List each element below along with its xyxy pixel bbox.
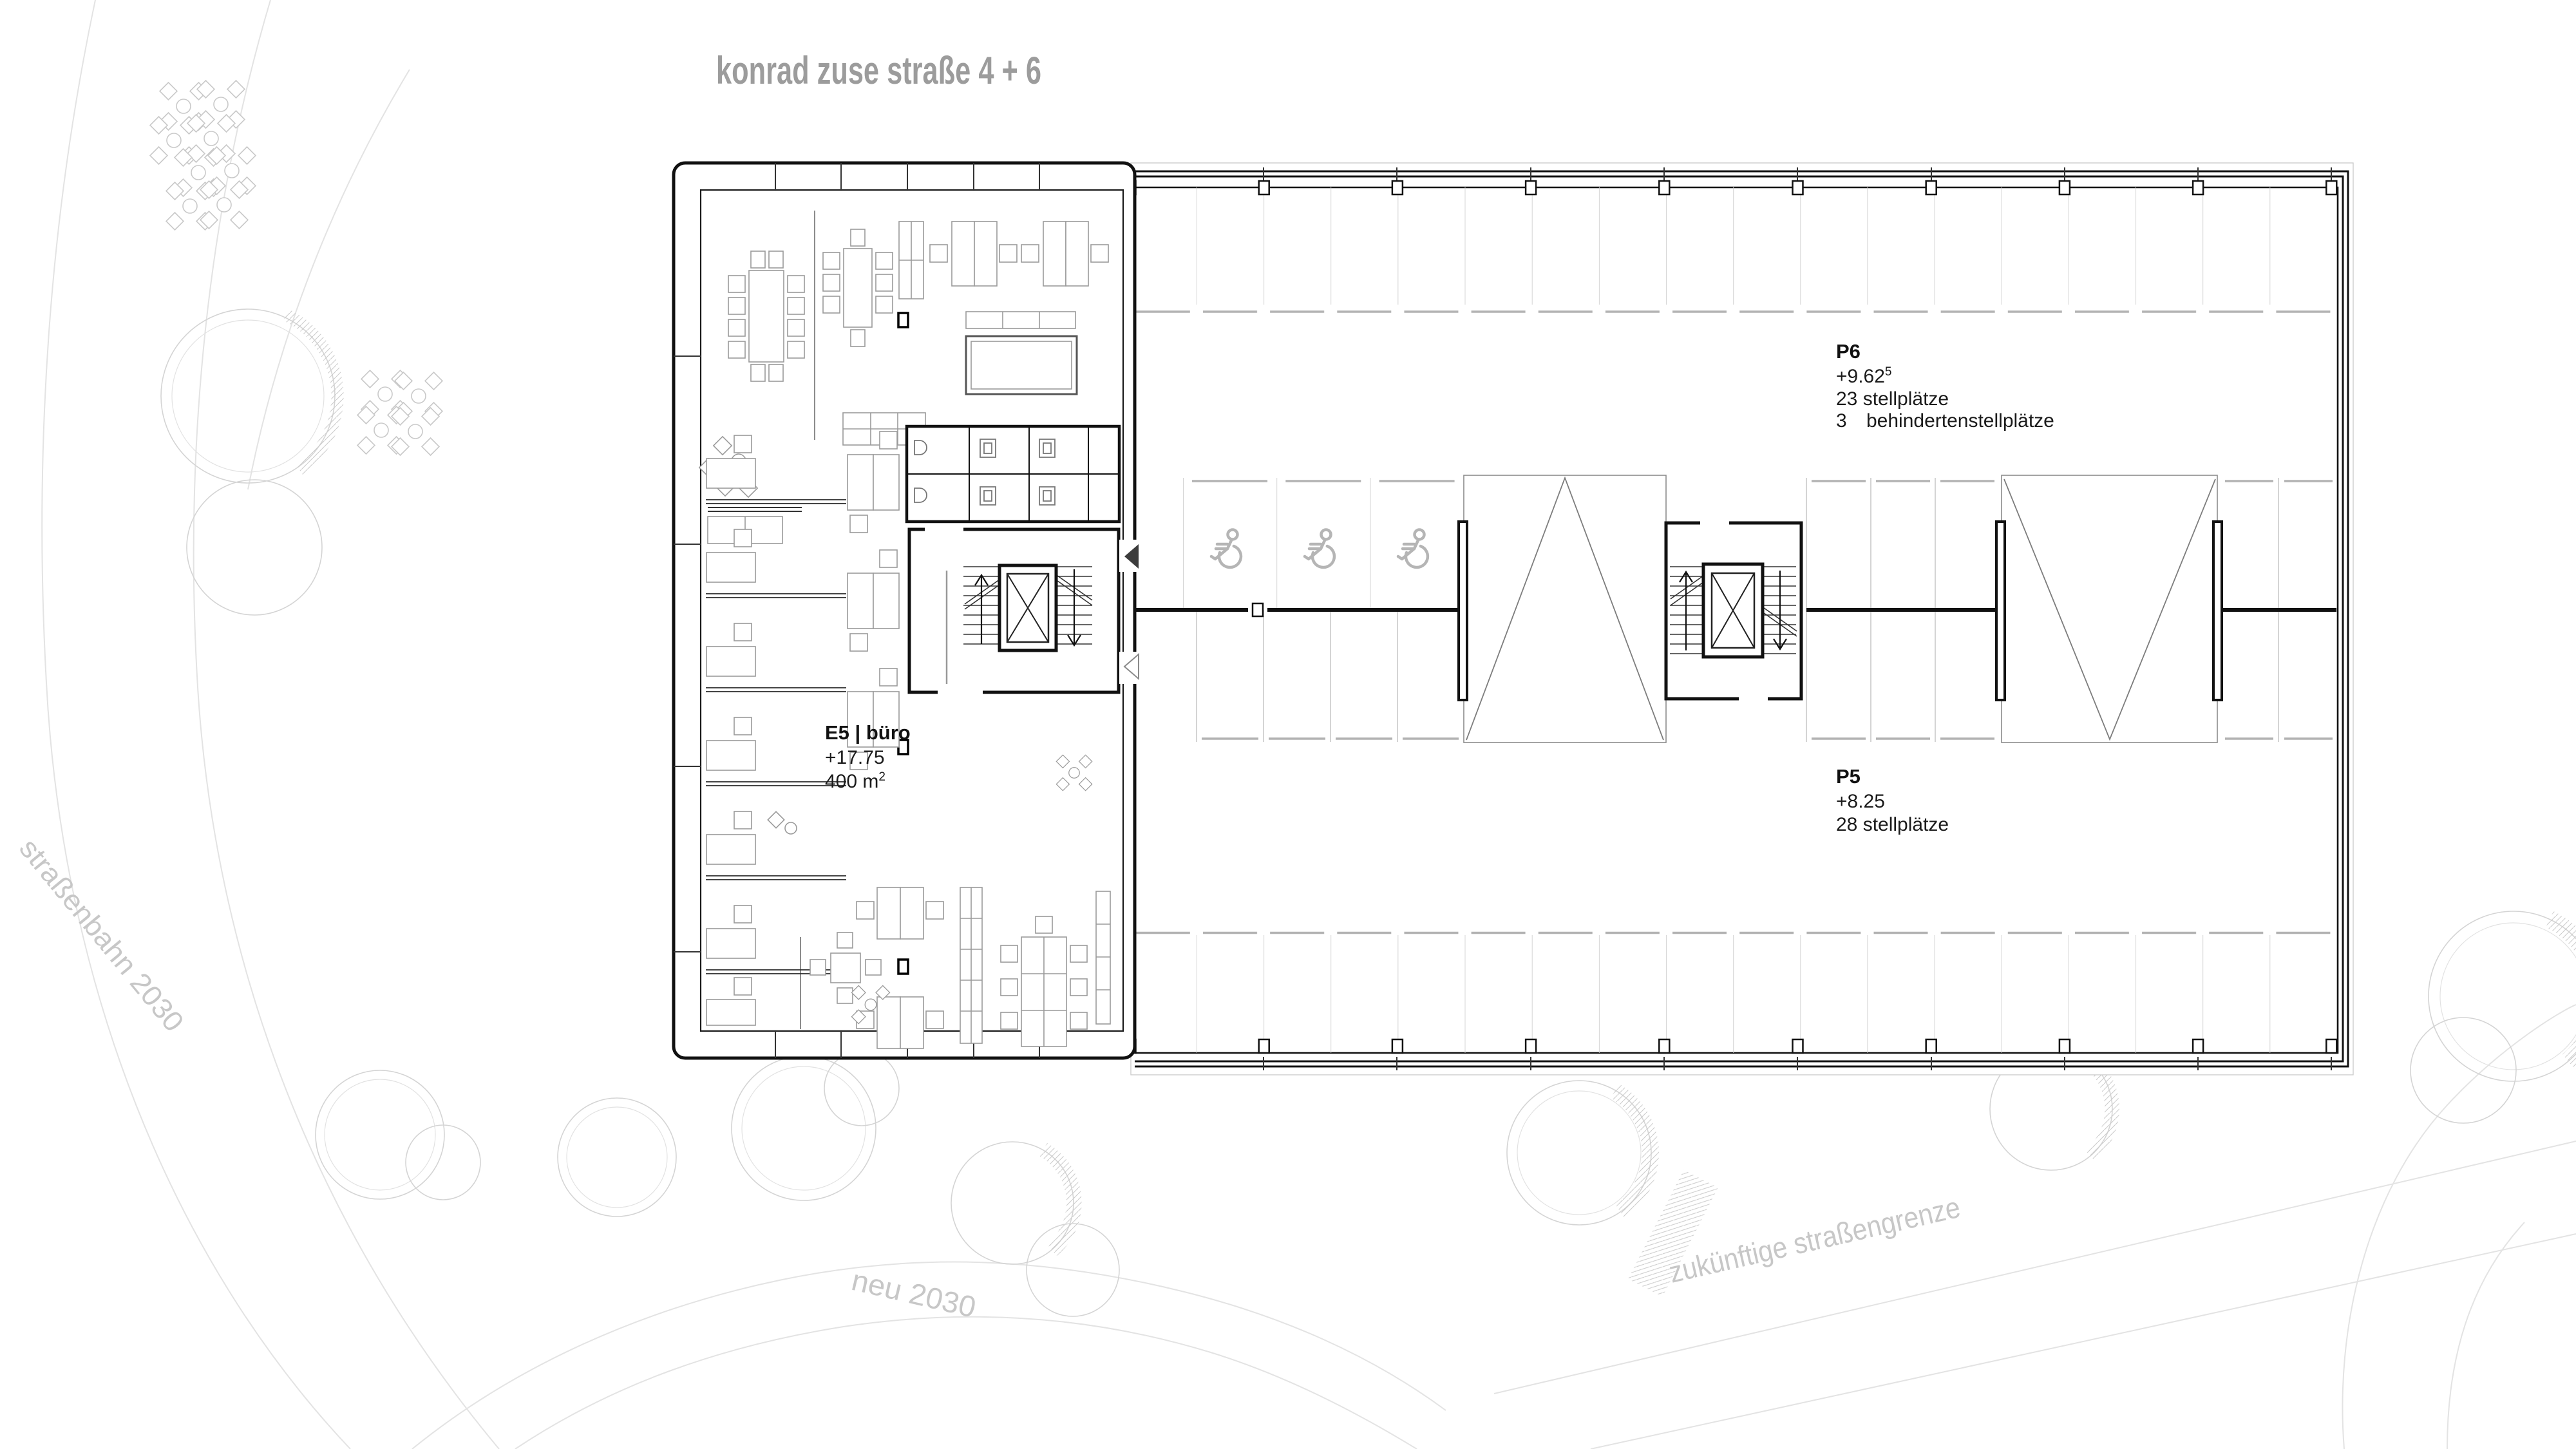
- tree-icon: [187, 480, 322, 615]
- tree-hatch: [1039, 1143, 1082, 1256]
- core-door-gap: [938, 689, 983, 696]
- ramp-wall-bar: [1996, 522, 2005, 700]
- tree-hatch: [2546, 911, 2576, 1068]
- p6-name: P6: [1836, 340, 1861, 363]
- future-boundary-label: zukünftige straßengrenze: [1666, 1190, 1964, 1289]
- ramp-wall-bar: [1459, 522, 1467, 700]
- new-road-label: neu 2030: [849, 1263, 980, 1324]
- long-counter: [960, 887, 982, 1043]
- core-door-gap: [925, 526, 963, 533]
- parking-structure: [1126, 163, 2354, 1075]
- tree-hatch: [1611, 1084, 1659, 1218]
- tree-icon: [732, 1056, 876, 1200]
- parking-stair-core: [1666, 519, 1801, 702]
- ramp-up: [1459, 475, 1666, 743]
- plant-icon: [200, 181, 248, 229]
- core-door-gap: [1700, 519, 1729, 526]
- p6-accessible-count: 3: [1836, 410, 1847, 431]
- plant-symbols: [150, 80, 442, 455]
- p5-stalls: 28 stellplätze: [1836, 814, 1949, 835]
- office-building: [674, 163, 1139, 1058]
- cabinet: [899, 222, 923, 299]
- wall-shelf: [1096, 891, 1110, 1024]
- p6-level: +9.625: [1836, 365, 1892, 387]
- p5-name: P5: [1836, 765, 1861, 788]
- plant-icon: [392, 408, 439, 455]
- e5-level: +17.75: [825, 747, 885, 768]
- parking-row-top: [1135, 187, 2336, 316]
- e5-name: E5 | büro: [825, 721, 911, 744]
- tree-hatch: [283, 309, 344, 475]
- e5-area: 400 m2: [825, 770, 885, 792]
- ramp-down: [1996, 475, 2222, 743]
- p5-level: +8.25: [1836, 791, 1885, 812]
- ramp-wall-bar: [2213, 522, 2222, 700]
- p6-stalls: 23 stellplätze: [1836, 388, 1949, 410]
- p6-accessible-label: behindertenstellplätze: [1866, 410, 2054, 431]
- tree-icon: [2429, 911, 2576, 1081]
- tram-label: straßenbahn 2030: [13, 833, 189, 1037]
- tree-icon: [824, 1051, 899, 1126]
- page-title: konrad zuse straße 4 + 6: [716, 49, 1041, 92]
- sideboard: [966, 312, 1075, 328]
- wc-block: [907, 426, 1119, 522]
- office-stair-core: [909, 526, 1119, 696]
- tree-icon: [316, 1070, 444, 1199]
- tree-icon: [2410, 1018, 2516, 1123]
- core-door-gap: [1739, 695, 1768, 702]
- tree-icon: [406, 1125, 480, 1200]
- framed-table: [966, 336, 1077, 394]
- floor-plan-canvas: straßenbahn 2030 neu 2030 zukünftige str…: [0, 0, 2576, 1449]
- tree-icon: [558, 1098, 676, 1217]
- parking-row-bottom: [1135, 931, 2336, 1053]
